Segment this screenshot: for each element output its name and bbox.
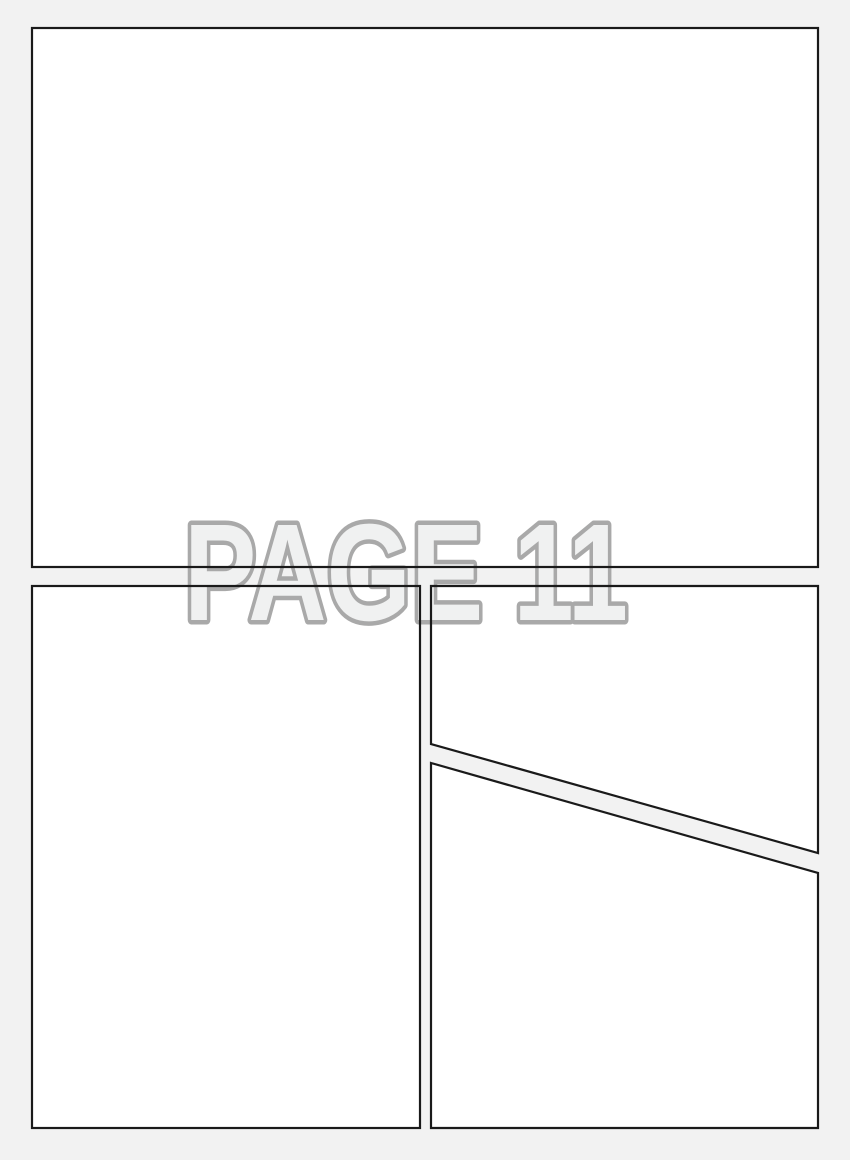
comic-page-template: PAGE 11: [0, 0, 850, 1160]
panel-bottom-left: [32, 586, 420, 1128]
page-number-label: PAGE 11: [184, 496, 628, 650]
panel-top: [32, 28, 818, 567]
